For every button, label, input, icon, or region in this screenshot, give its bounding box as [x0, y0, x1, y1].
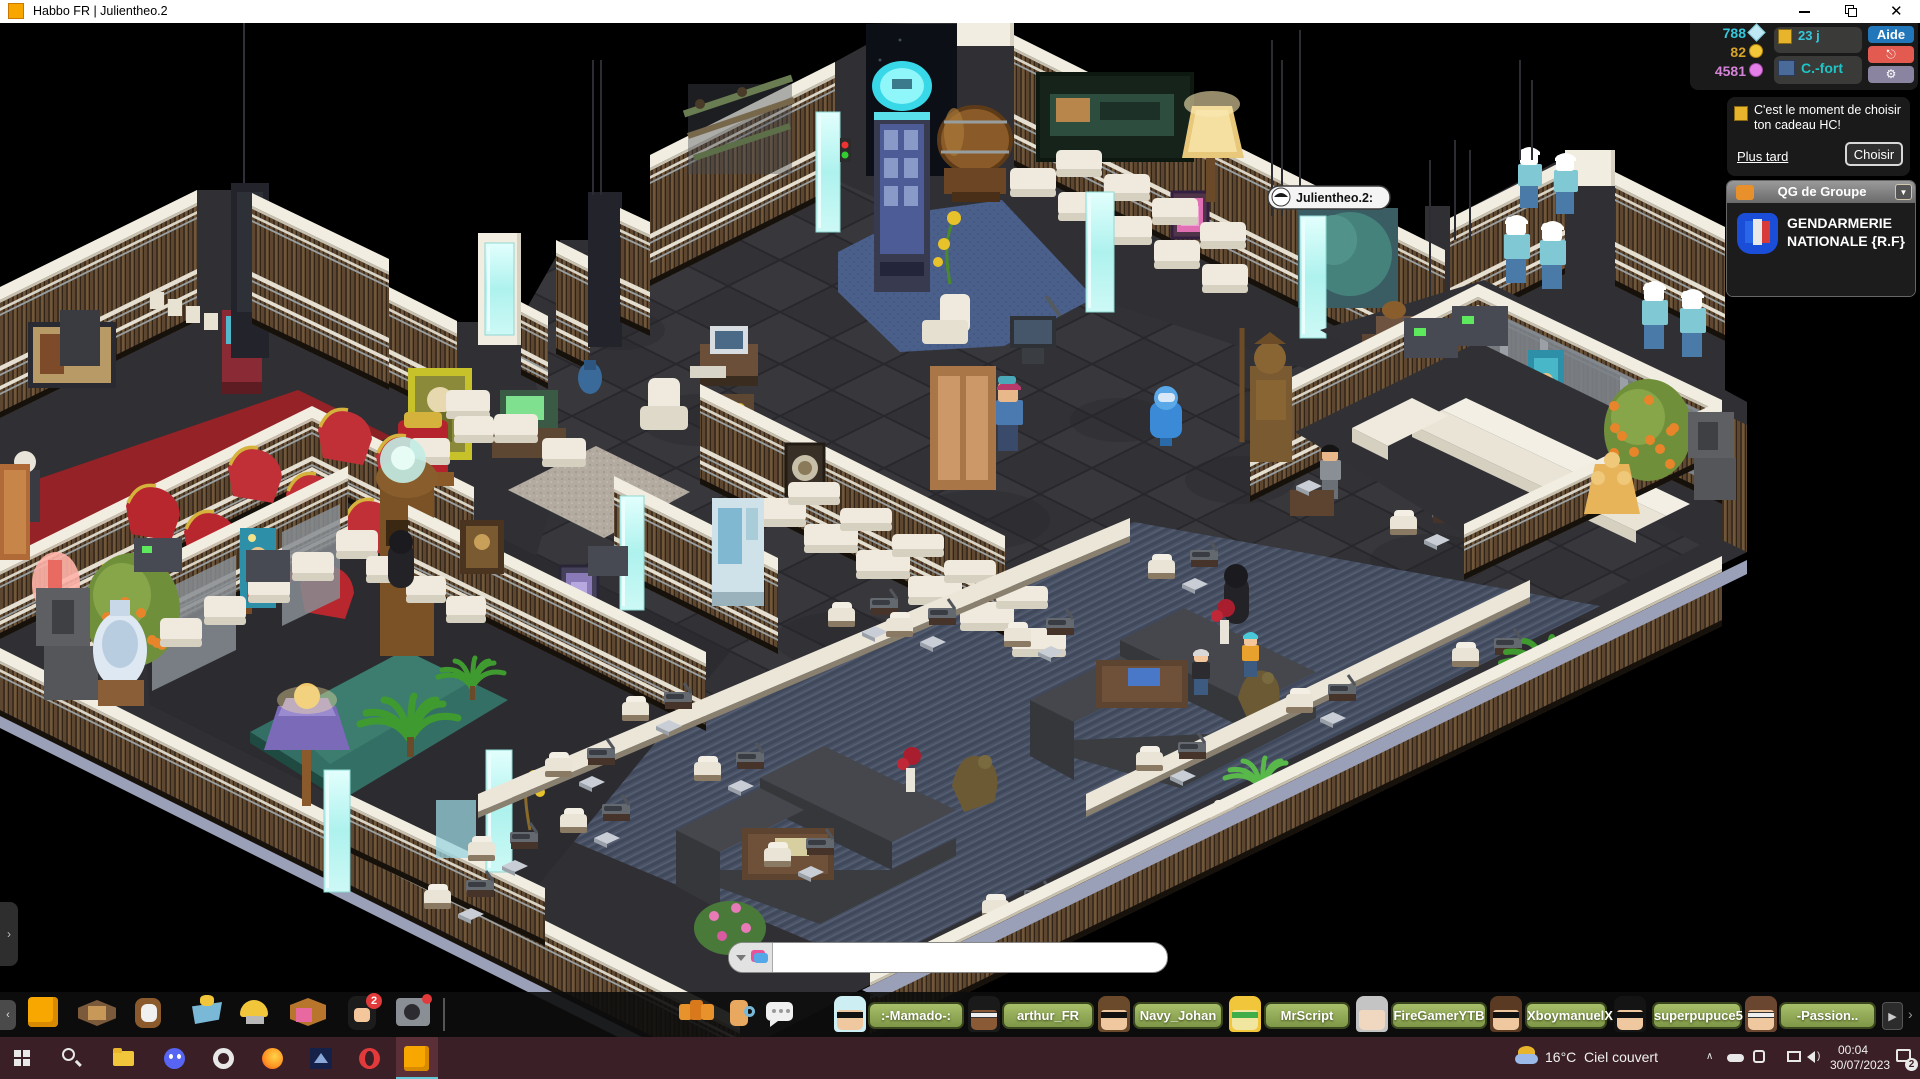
svg-text:Julientheo.2:: Julientheo.2:: [1296, 191, 1373, 205]
